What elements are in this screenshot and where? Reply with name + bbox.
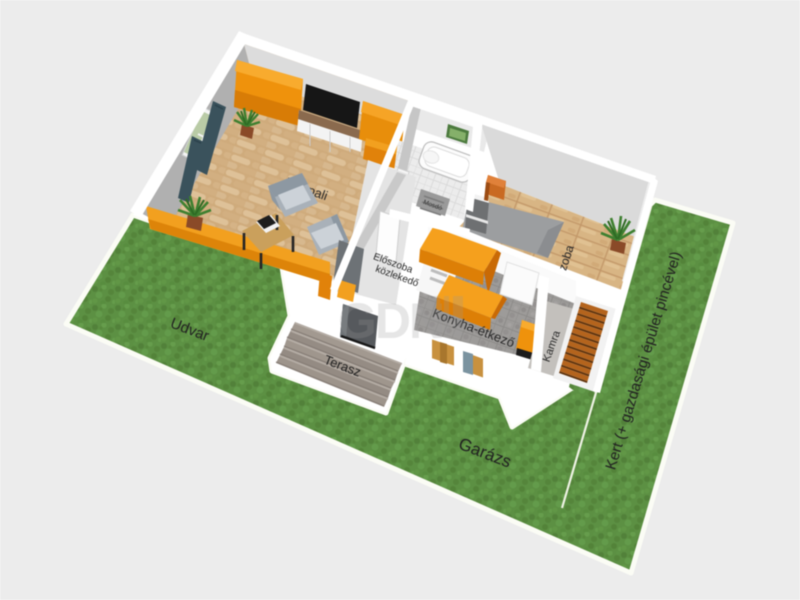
svg-text:GDN: GDN <box>338 293 443 349</box>
